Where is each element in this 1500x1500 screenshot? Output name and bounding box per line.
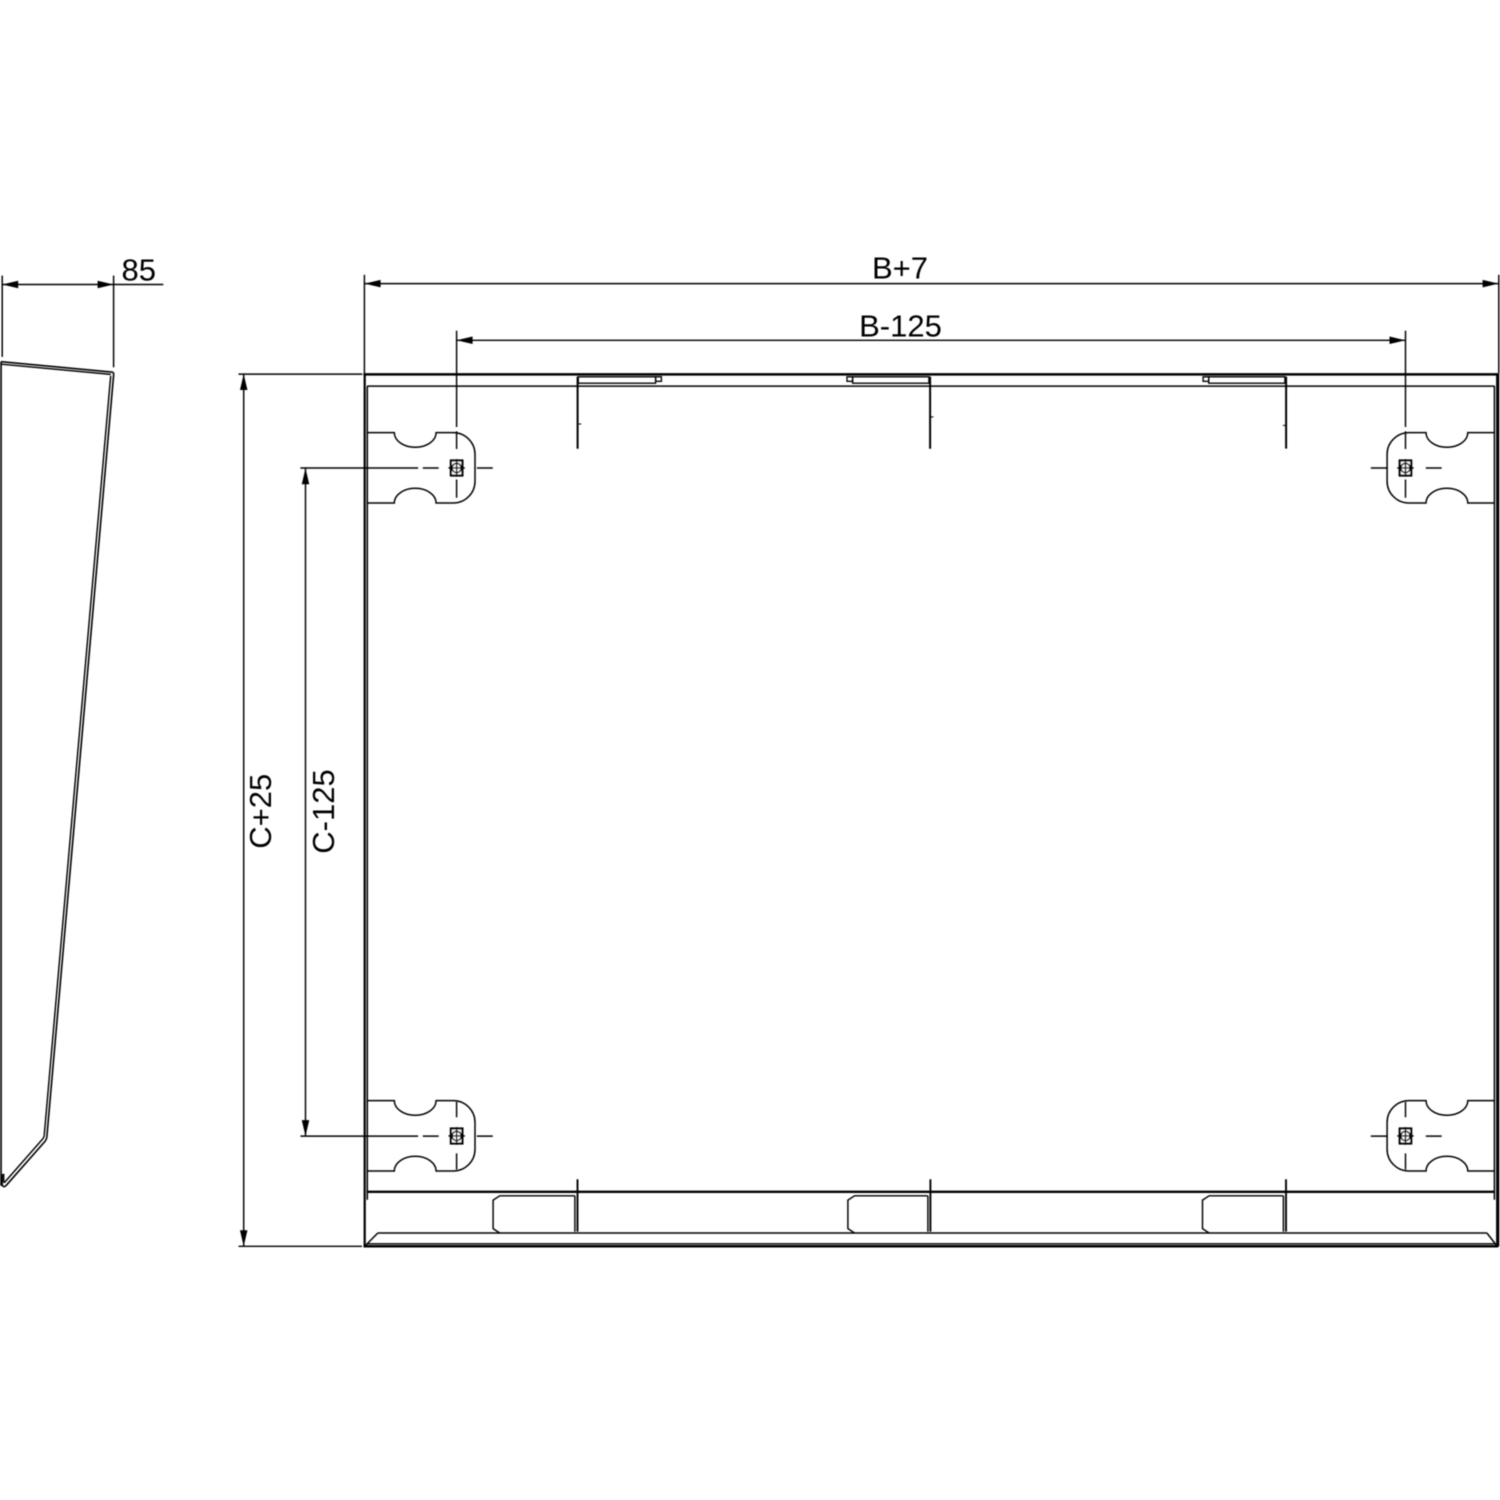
svg-text:85: 85 xyxy=(121,253,155,288)
svg-text:B-125: B-125 xyxy=(859,308,942,343)
svg-text:C-125: C-125 xyxy=(306,769,341,853)
svg-text:C+25: C+25 xyxy=(243,774,278,849)
svg-text:B+7: B+7 xyxy=(872,251,928,286)
